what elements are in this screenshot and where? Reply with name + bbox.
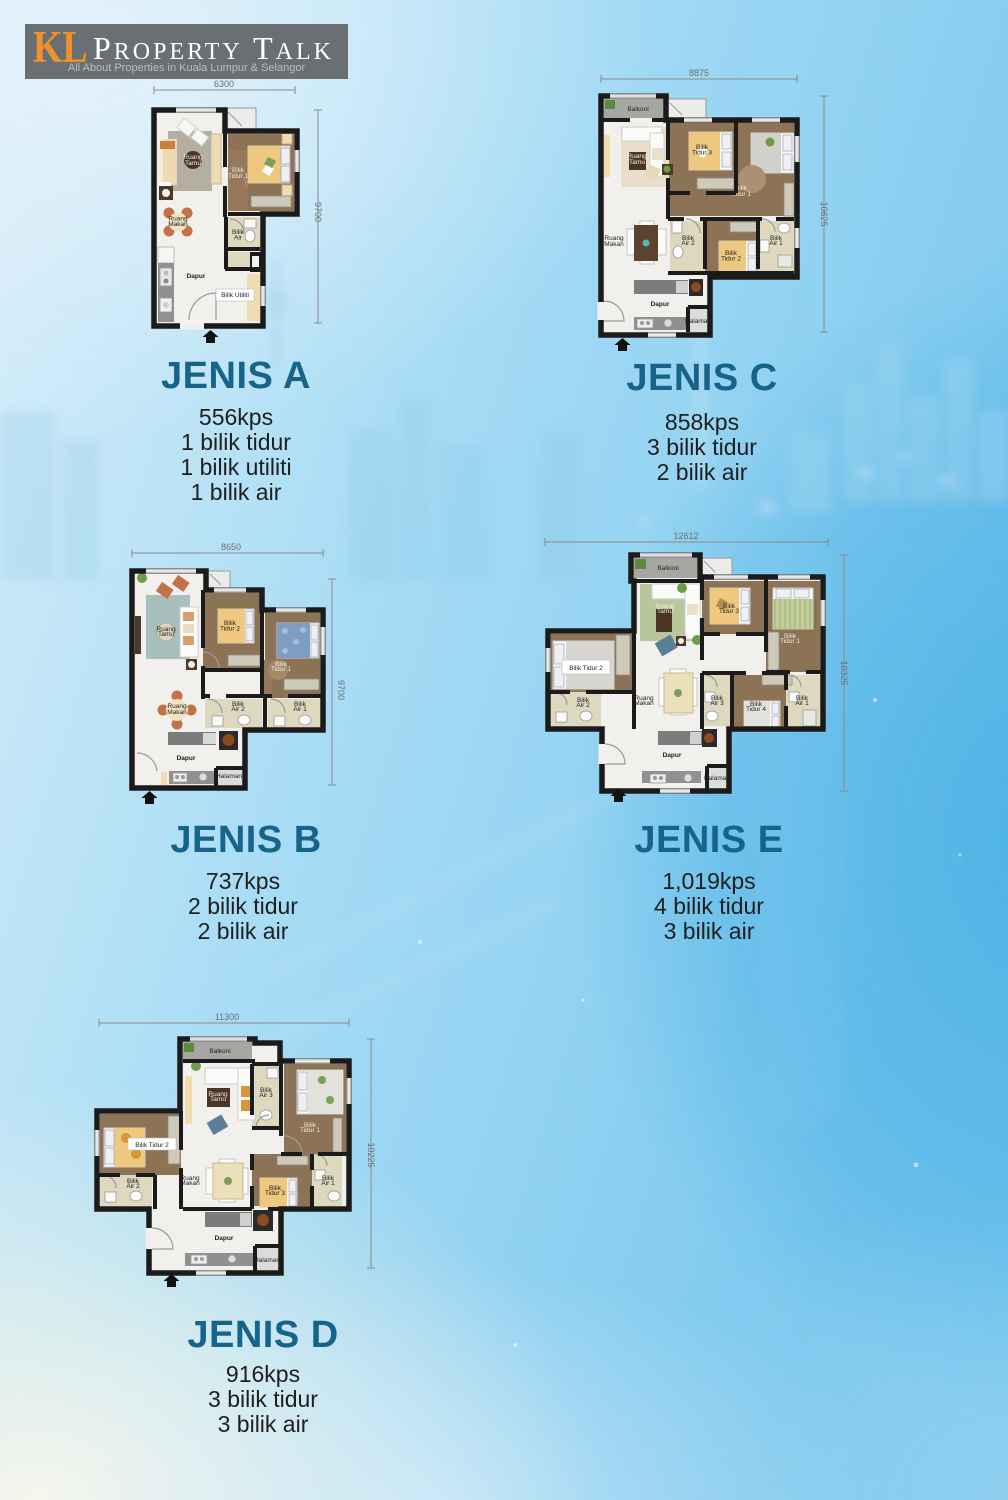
svg-text:Makan: Makan — [604, 241, 624, 248]
svg-text:9700: 9700 — [313, 202, 323, 222]
svg-text:Tamu: Tamu — [629, 159, 645, 166]
svg-text:Dapur: Dapur — [177, 755, 196, 762]
svg-text:10325: 10325 — [839, 660, 849, 685]
svg-text:Bilik Tidur 2: Bilik Tidur 2 — [135, 1142, 169, 1149]
svg-text:Dapur: Dapur — [187, 273, 206, 280]
svg-text:Air 2: Air 2 — [231, 706, 245, 713]
svg-text:Dapur: Dapur — [651, 301, 670, 308]
svg-text:Dapur: Dapur — [663, 752, 682, 759]
svg-text:Makan: Makan — [634, 700, 654, 707]
svg-text:Tamu: Tamu — [210, 1096, 226, 1103]
svg-text:6300: 6300 — [214, 79, 234, 89]
svg-text:8650: 8650 — [221, 542, 241, 552]
svg-text:Air 2: Air 2 — [681, 240, 695, 247]
svg-text:12612: 12612 — [673, 531, 698, 541]
svg-text:Tidur 1: Tidur 1 — [271, 666, 291, 673]
svg-text:Tamu: Tamu — [657, 608, 673, 615]
svg-text:Halaman: Halaman — [216, 773, 242, 780]
svg-text:Makan: Makan — [167, 709, 187, 716]
svg-text:8875: 8875 — [689, 68, 709, 78]
svg-text:10225: 10225 — [366, 1142, 376, 1167]
svg-text:Makan: Makan — [168, 221, 188, 228]
svg-text:Air 1: Air 1 — [321, 1180, 335, 1187]
svg-text:Balkoni: Balkoni — [627, 106, 648, 113]
svg-text:Makan: Makan — [180, 1180, 200, 1187]
svg-text:Balkoni: Balkoni — [209, 1048, 230, 1055]
svg-text:10625: 10625 — [819, 201, 829, 226]
svg-text:Tamu: Tamu — [185, 160, 201, 167]
svg-text:Air 1: Air 1 — [293, 706, 307, 713]
svg-text:Air 2: Air 2 — [576, 702, 590, 709]
svg-text:Tidur 3: Tidur 3 — [265, 1190, 285, 1197]
svg-text:Air: Air — [234, 235, 243, 242]
svg-text:Air 2: Air 2 — [126, 1183, 140, 1190]
svg-text:9700: 9700 — [336, 680, 346, 700]
svg-text:Tidur 4: Tidur 4 — [746, 706, 766, 713]
svg-text:Bilik Utiliti: Bilik Utiliti — [221, 292, 249, 299]
svg-text:Air 1: Air 1 — [795, 700, 809, 707]
svg-text:Air 3: Air 3 — [710, 700, 724, 707]
svg-text:Air 3: Air 3 — [259, 1092, 273, 1099]
svg-text:Tidur 3: Tidur 3 — [692, 150, 712, 157]
svg-text:Balkoni: Balkoni — [657, 565, 678, 572]
svg-text:Tidur 3: Tidur 3 — [719, 608, 739, 615]
svg-text:Halaman: Halaman — [254, 1257, 280, 1264]
svg-text:Tidur 2: Tidur 2 — [220, 626, 240, 633]
svg-text:Tidur 1: Tidur 1 — [300, 1127, 320, 1134]
svg-text:11300: 11300 — [215, 1012, 239, 1022]
svg-text:Tidur 2: Tidur 2 — [721, 256, 741, 263]
svg-text:Dapur: Dapur — [215, 1235, 234, 1242]
svg-text:Tidur 1: Tidur 1 — [228, 173, 248, 180]
svg-text:Tamu: Tamu — [158, 631, 174, 638]
svg-text:Bilik Tidur 2: Bilik Tidur 2 — [569, 665, 603, 672]
svg-text:Tidur 1: Tidur 1 — [780, 638, 800, 645]
svg-text:Air 1: Air 1 — [769, 240, 783, 247]
